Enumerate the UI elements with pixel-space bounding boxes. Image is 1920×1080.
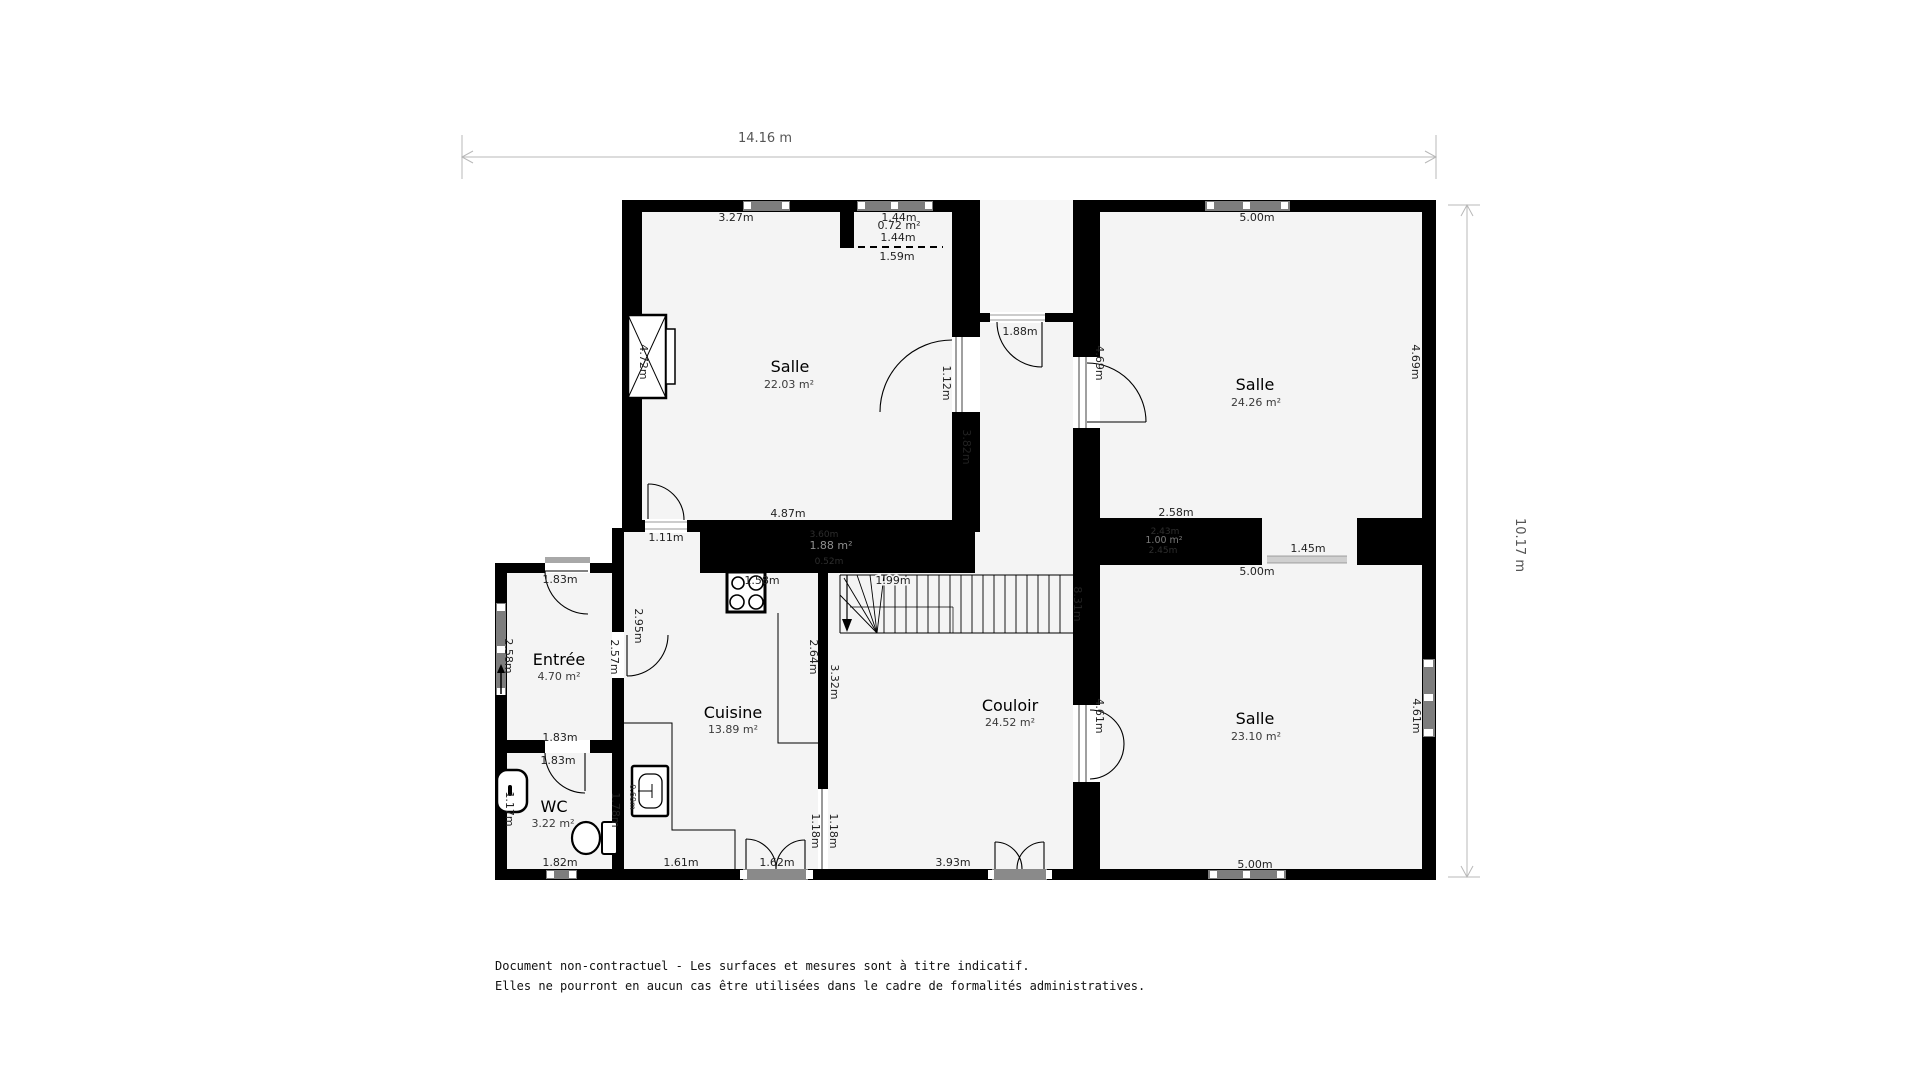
window-salle3-bottom bbox=[1208, 870, 1286, 879]
window-salle2-top bbox=[1205, 201, 1290, 211]
room-label-cuisine: Cuisine bbox=[704, 703, 763, 722]
disclaimer-line1: Document non-contractuel - Les surfaces … bbox=[495, 959, 1030, 973]
salle3-bottom-label: 5.00m bbox=[1237, 858, 1272, 871]
closet1-depth-label: 0.52m bbox=[815, 557, 844, 567]
width-dimension-label: 14.16 m bbox=[738, 131, 792, 146]
entree-door-label: 1.83m bbox=[542, 573, 577, 586]
room-area-wc: 3.22 m² bbox=[531, 817, 574, 830]
room-label-salle3: Salle bbox=[1236, 709, 1275, 728]
window-salle1-top bbox=[743, 201, 790, 211]
stairs-label: 1.99m bbox=[875, 574, 910, 587]
wc-door-label: 1.83m bbox=[540, 754, 575, 767]
room-label-salle2: Salle bbox=[1236, 375, 1275, 394]
disclaimer-line2: Elles ne pourront en aucun cas être util… bbox=[495, 979, 1145, 993]
salle3-right-label: 4.61m bbox=[1410, 698, 1423, 733]
stove-label: 1.58m bbox=[744, 574, 779, 587]
passage1-label: 1.18m bbox=[809, 813, 822, 848]
couloir-bottom-label: 3.93m bbox=[935, 856, 970, 869]
window-wc-bottom bbox=[546, 870, 577, 879]
room-area-salle3: 23.10 m² bbox=[1231, 730, 1281, 743]
salle3-top-label: 5.00m bbox=[1239, 565, 1274, 578]
couloir-right-label: 8.31m bbox=[1071, 586, 1084, 621]
cuisine-left-up-label: 2.95m bbox=[632, 608, 645, 643]
salle1-left-label: 4.72m bbox=[637, 344, 650, 379]
closet1-area-label: 1.88 m² bbox=[809, 539, 852, 552]
salle3-left-label: 4.61m bbox=[1093, 698, 1106, 733]
room-area-cuisine: 13.89 m² bbox=[708, 723, 758, 736]
salle2-left-label: 4.69m bbox=[1093, 345, 1106, 380]
salle2-bottom-seg-label: 2.58m bbox=[1158, 506, 1193, 519]
room-area-entree: 4.70 m² bbox=[537, 670, 580, 683]
wc-left-label: 1.17m bbox=[503, 791, 516, 826]
dimension-height: 10.17 m bbox=[1448, 205, 1527, 877]
niche-dash-label: 1.59m bbox=[879, 250, 914, 263]
salle1-door-right-label: 1.12m bbox=[940, 365, 953, 400]
salle1-top-label: 3.27m bbox=[718, 211, 753, 224]
height-dimension-label: 10.17 m bbox=[1512, 518, 1527, 572]
exterior-recess bbox=[980, 200, 1073, 313]
floor-plan-page: 3.60m 1.88 m² 0.52m 2.43m 1.00 m² 2.45m bbox=[0, 0, 1920, 1080]
window-niche-top bbox=[857, 201, 933, 211]
closet2-depth-label: 2.45m bbox=[1149, 546, 1178, 556]
disclaimer: Document non-contractuel - Les surfaces … bbox=[495, 959, 1145, 993]
room-label-entree: Entrée bbox=[533, 650, 585, 669]
cuisine-left-label: 2.64m bbox=[807, 639, 820, 674]
cuisine-door-label: 1.62m bbox=[759, 856, 794, 869]
sink-width-label: 0.60m bbox=[628, 784, 637, 810]
salle1-door-bottom-label: 1.11m bbox=[648, 531, 683, 544]
salle2-top-label: 5.00m bbox=[1239, 211, 1274, 224]
room-label-wc: WC bbox=[541, 797, 568, 816]
salle1-right-label: 3.82m bbox=[960, 429, 973, 464]
niche-width2-label: 1.44m bbox=[880, 231, 915, 244]
room-label-salle1: Salle bbox=[771, 357, 810, 376]
floor-plan: 3.60m 1.88 m² 0.52m 2.43m 1.00 m² 2.45m bbox=[0, 0, 1920, 1080]
cuisine-bottom-label: 1.61m bbox=[663, 856, 698, 869]
passage-label: 1.45m bbox=[1290, 542, 1325, 555]
window-salle3-right bbox=[1423, 659, 1435, 737]
floor-couloir bbox=[828, 573, 1073, 869]
salle2-right-label: 4.69m bbox=[1409, 344, 1422, 379]
room-area-salle2: 24.26 m² bbox=[1231, 396, 1281, 409]
wc-right-label: 1.78m bbox=[609, 792, 622, 827]
couloir-left-label: 3.32m bbox=[828, 664, 841, 699]
entree-right-label: 2.57m bbox=[608, 639, 621, 674]
floor-cuisine bbox=[624, 528, 818, 869]
closet2-area-label: 1.00 m² bbox=[1145, 535, 1182, 546]
wc-window-label: 1.82m bbox=[542, 856, 577, 869]
passage-sill bbox=[1267, 556, 1347, 563]
passage2-label: 1.18m bbox=[827, 813, 840, 848]
entree-left-label: 2.58m bbox=[502, 638, 515, 673]
couloir-top-door-label: 1.88m bbox=[1002, 325, 1037, 338]
salle1-bottom-label: 4.87m bbox=[770, 507, 805, 520]
room-area-salle1: 22.03 m² bbox=[764, 378, 814, 391]
dimension-width: 14.16 m bbox=[462, 131, 1436, 179]
entree-bottom-label: 1.83m bbox=[542, 731, 577, 744]
floor-salle2 bbox=[1100, 212, 1422, 518]
room-label-couloir: Couloir bbox=[982, 696, 1039, 715]
room-area-couloir: 24.52 m² bbox=[985, 716, 1035, 729]
